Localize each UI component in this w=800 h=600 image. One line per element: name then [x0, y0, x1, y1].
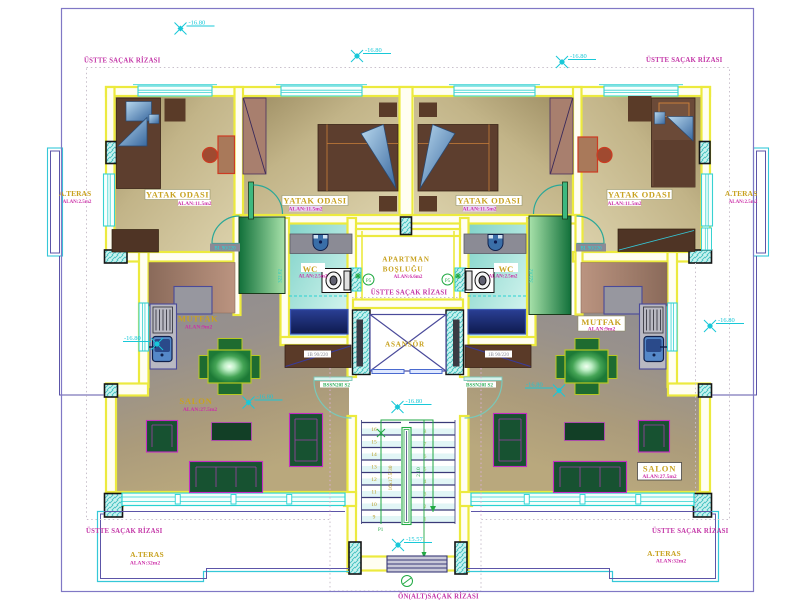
- svg-text:ÜSTTE SAÇAK RİZASI: ÜSTTE SAÇAK RİZASI: [84, 58, 161, 65]
- svg-text:ALAN:32m2: ALAN:32m2: [130, 561, 160, 567]
- svg-text:ÜSTTE SAÇAK RİZASI: ÜSTTE SAÇAK RİZASI: [652, 528, 729, 535]
- svg-text:ALAN:11.5m2: ALAN:11.5m2: [288, 207, 322, 213]
- svg-text:APARTMAN: APARTMAN: [382, 256, 430, 264]
- svg-text:-16.80: -16.80: [718, 317, 735, 324]
- svg-text:-16.80: -16.80: [526, 382, 543, 389]
- svg-text:ALAN:27.5m2: ALAN:27.5m2: [642, 474, 677, 480]
- svg-text:ÜSTTE SAÇAK RİZASI: ÜSTTE SAÇAK RİZASI: [646, 57, 723, 64]
- svg-text:ALAN:2.5m2: ALAN:2.5m2: [489, 275, 518, 280]
- svg-text:BL 90/220: BL 90/220: [214, 247, 236, 252]
- svg-text:-16.80: -16.80: [365, 47, 382, 54]
- svg-text:SALON: SALON: [643, 464, 676, 474]
- svg-text:SALON: SALON: [179, 396, 212, 406]
- svg-text:16: 16: [371, 427, 377, 433]
- svg-text:ÖN(ALT)SAÇAK RİZASI: ÖN(ALT)SAÇAK RİZASI: [398, 594, 479, 600]
- svg-text:ÜSTTE SAÇAK RİZASI: ÜSTTE SAÇAK RİZASI: [371, 290, 448, 297]
- svg-text:14: 14: [371, 452, 377, 458]
- svg-text:BL 90/220: BL 90/220: [580, 247, 602, 252]
- svg-text:322.02: 322.02: [530, 269, 535, 283]
- svg-text:ALAN:32m2: ALAN:32m2: [656, 559, 686, 565]
- svg-text:-16.80: -16.80: [570, 53, 587, 60]
- svg-text:ALAN:27.5m2: ALAN:27.5m2: [183, 407, 218, 413]
- svg-text:-16.80: -16.80: [406, 398, 423, 405]
- svg-text:BSSN20I S2: BSSN20I S2: [466, 383, 493, 389]
- svg-text:-16.80: -16.80: [124, 335, 141, 342]
- svg-text:WC: WC: [499, 264, 514, 274]
- svg-text:YATAK ODASI: YATAK ODASI: [283, 196, 346, 206]
- svg-text:ALAN:11.5m2: ALAN:11.5m2: [462, 207, 496, 213]
- svg-text:ASANSÖR: ASANSÖR: [385, 340, 425, 349]
- svg-text:12: 12: [371, 477, 377, 483]
- svg-text:ALAN:2.5m2: ALAN:2.5m2: [299, 275, 328, 280]
- svg-text:-16.80: -16.80: [257, 394, 274, 401]
- svg-text:9: 9: [373, 515, 376, 521]
- svg-text:P1: P1: [378, 528, 384, 533]
- svg-text:P5: P5: [366, 279, 372, 284]
- svg-text:13: 13: [371, 465, 377, 471]
- svg-text:2.10: 2.10: [416, 467, 422, 477]
- svg-text:-15.57: -15.57: [406, 536, 424, 543]
- svg-text:ALAN:9m2: ALAN:9m2: [588, 327, 616, 333]
- svg-text:ÜSTTE SAÇAK RİZASI: ÜSTTE SAÇAK RİZASI: [86, 528, 163, 535]
- svg-text:322.02: 322.02: [279, 269, 284, 283]
- svg-text:A.TERAS: A.TERAS: [647, 549, 681, 558]
- svg-text:15: 15: [371, 440, 377, 446]
- svg-text:YATAK ODASI: YATAK ODASI: [457, 196, 520, 206]
- svg-text:MUTFAK: MUTFAK: [178, 314, 218, 324]
- svg-text:P5: P5: [445, 279, 451, 284]
- svg-text:10: 10: [371, 502, 377, 508]
- svg-text:BOŞLUĞU: BOŞLUĞU: [383, 264, 424, 274]
- svg-text:ALAN:11.5m2: ALAN:11.5m2: [607, 201, 641, 207]
- svg-text:ALAN:2.5m2: ALAN:2.5m2: [63, 200, 92, 205]
- svg-text:YATAK ODASI: YATAK ODASI: [608, 190, 671, 200]
- svg-text:A.TERAS: A.TERAS: [130, 550, 164, 559]
- svg-text:MUTFAK: MUTFAK: [581, 317, 621, 327]
- svg-text:ALAN:6.6m2: ALAN:6.6m2: [394, 275, 423, 280]
- svg-text:ALAN:9m2: ALAN:9m2: [185, 325, 213, 331]
- svg-text:1B 90/220: 1B 90/220: [307, 353, 328, 358]
- svg-text:16x17.5/30: 16x17.5/30: [388, 465, 394, 490]
- svg-text:WC: WC: [303, 264, 318, 274]
- svg-text:11: 11: [371, 490, 377, 496]
- svg-text:ALAN:11.5m2: ALAN:11.5m2: [177, 201, 211, 207]
- svg-text:-16.80: -16.80: [189, 20, 206, 27]
- svg-text:1B 90/220: 1B 90/220: [488, 353, 509, 358]
- svg-text:BSSN20I S2: BSSN20I S2: [323, 383, 350, 389]
- svg-text:YATAK ODASI: YATAK ODASI: [146, 190, 209, 200]
